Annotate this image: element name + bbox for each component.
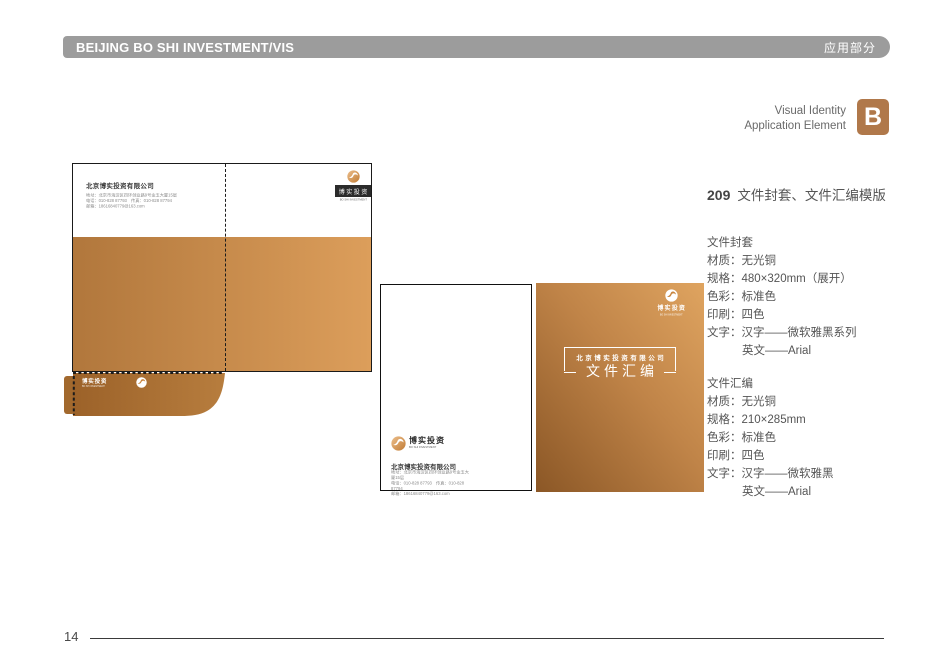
frame-dash-left xyxy=(564,372,576,373)
section-title-text: 文件封套、文件汇编模版 xyxy=(737,188,886,203)
folder-orange-panel xyxy=(73,237,371,371)
logo-wordmark-en: BO SHI INVESTMENT xyxy=(82,385,105,388)
pocket-logo: 博实投资 BO SHI INVESTMENT xyxy=(82,377,147,391)
booklet-white-cover: 博实投资 BO SHI INVESTMENT 北京博实投资有限公司 地址：北京市… xyxy=(380,284,532,491)
logo-wordmark-cn: 博实投资 xyxy=(82,377,133,385)
spec-line: 规格：210×285mm xyxy=(707,411,834,429)
logo-wordmark-en: BO SHI INVESTMENT xyxy=(660,314,683,317)
logo-wordmark-cn: 博实投资 xyxy=(657,303,686,312)
folder-logo: 博实投资 BO SHI INVESTMENT xyxy=(332,170,374,203)
logo-wordmark-en: BO SHI INVESTMENT xyxy=(339,199,366,202)
folder-mockup: 北京博实投资有限公司 地址：北京市海淀区四环创业路9号金玉大厦15层 电话：01… xyxy=(72,163,372,372)
spec-block-compilation: 文件汇编 材质：无光铜 规格：210×285mm 色彩：标准色 印刷：四色 文字… xyxy=(707,375,834,501)
cover-company-name: 北京博实投资有限公司 xyxy=(565,352,675,362)
footer-rule xyxy=(90,638,884,639)
phone-line: 电话：010-828 87793 传真：010-828 87794 xyxy=(391,481,472,492)
pocket-logo-text: 博实投资 BO SHI INVESTMENT xyxy=(82,377,133,391)
letterhead-details: 地址：北京市海淀区四环创业路9号金玉大厦15层 电话：010-828 87793… xyxy=(86,193,235,209)
spec-line-indent: 英文——Arial xyxy=(707,483,834,501)
page-number: 14 xyxy=(64,629,78,644)
spec-line: 印刷：四色 xyxy=(707,306,857,324)
section-b-badge: B xyxy=(857,99,889,135)
cover-title-row: 文件汇编 xyxy=(564,365,676,379)
header-bar: BEIJING BO SHI INVESTMENT/VIS 应用部分 xyxy=(63,36,890,58)
spec-heading: 文件汇编 xyxy=(707,375,834,393)
logo-swirl-icon xyxy=(665,289,678,302)
email-line: 邮箱：18616840779@163.com xyxy=(86,204,235,209)
logo-swirl-icon xyxy=(391,436,406,451)
logo-wordmark-cn: 博实投资 xyxy=(335,185,371,197)
logo-wordmark-cn: 博实投资 xyxy=(409,435,470,446)
address-line: 地址：北京市海淀区四环创业路9号金玉大厦15层 xyxy=(391,470,472,481)
header-title: BEIJING BO SHI INVESTMENT/VIS xyxy=(76,40,294,55)
email-line: 邮箱：18616840779@163.com xyxy=(391,492,472,497)
logo-swirl-icon xyxy=(136,377,147,388)
cover-title: 文件汇编 xyxy=(582,365,658,379)
spec-line-indent: 英文——Arial xyxy=(707,342,857,360)
spec-line: 材质：无光铜 xyxy=(707,252,857,270)
spec-line: 文字：汉字——微软雅黑 xyxy=(707,465,834,483)
corner-label-line1: Visual Identity xyxy=(744,104,846,119)
spec-line: 色彩：标准色 xyxy=(707,429,834,447)
header-section-tag: 应用部分 xyxy=(824,39,876,56)
spec-line: 色彩：标准色 xyxy=(707,288,857,306)
section-title: 209文件封套、文件汇编模版 xyxy=(707,184,886,204)
cover-logo: 博实投资 BO SHI INVESTMENT xyxy=(646,289,697,318)
letterhead-details: 地址：北京市海淀区四环创业路9号金玉大厦15层 电话：010-828 87793… xyxy=(391,470,472,497)
section-number: 209 xyxy=(707,187,730,203)
company-name: 北京博实投资有限公司 xyxy=(86,180,236,190)
spec-line: 文字：汉字——微软雅黑系列 xyxy=(707,324,857,342)
booklet-logo-text: 博实投资 BO SHI INVESTMENT xyxy=(409,435,470,452)
spec-line: 印刷：四色 xyxy=(707,447,834,465)
corner-label: Visual Identity Application Element xyxy=(744,104,846,134)
corner-label-line2: Application Element xyxy=(744,119,846,134)
spec-line: 规格：480×320mm（展开） xyxy=(707,270,857,288)
booklet-logo: 博实投资 BO SHI INVESTMENT xyxy=(391,435,470,452)
vi-manual-page: BEIJING BO SHI INVESTMENT/VIS 应用部分 Visua… xyxy=(0,0,948,665)
folder-letterhead: 北京博实投资有限公司 地址：北京市海淀区四环创业路9号金玉大厦15层 电话：01… xyxy=(86,180,236,220)
logo-swirl-icon xyxy=(347,170,360,183)
frame-dash-right xyxy=(664,372,676,373)
cover-title-frame: 北京博实投资有限公司 文件汇编 xyxy=(564,347,676,371)
logo-wordmark-en: BO SHI INVESTMENT xyxy=(409,446,436,449)
spec-line: 材质：无光铜 xyxy=(707,393,834,411)
spec-heading: 文件封套 xyxy=(707,234,857,252)
booklet-orange-cover: 博实投资 BO SHI INVESTMENT 北京博实投资有限公司 文件汇编 xyxy=(536,283,704,492)
spec-block-folder: 文件封套 材质：无光铜 规格：480×320mm（展开） 色彩：标准色 印刷：四… xyxy=(707,234,857,360)
